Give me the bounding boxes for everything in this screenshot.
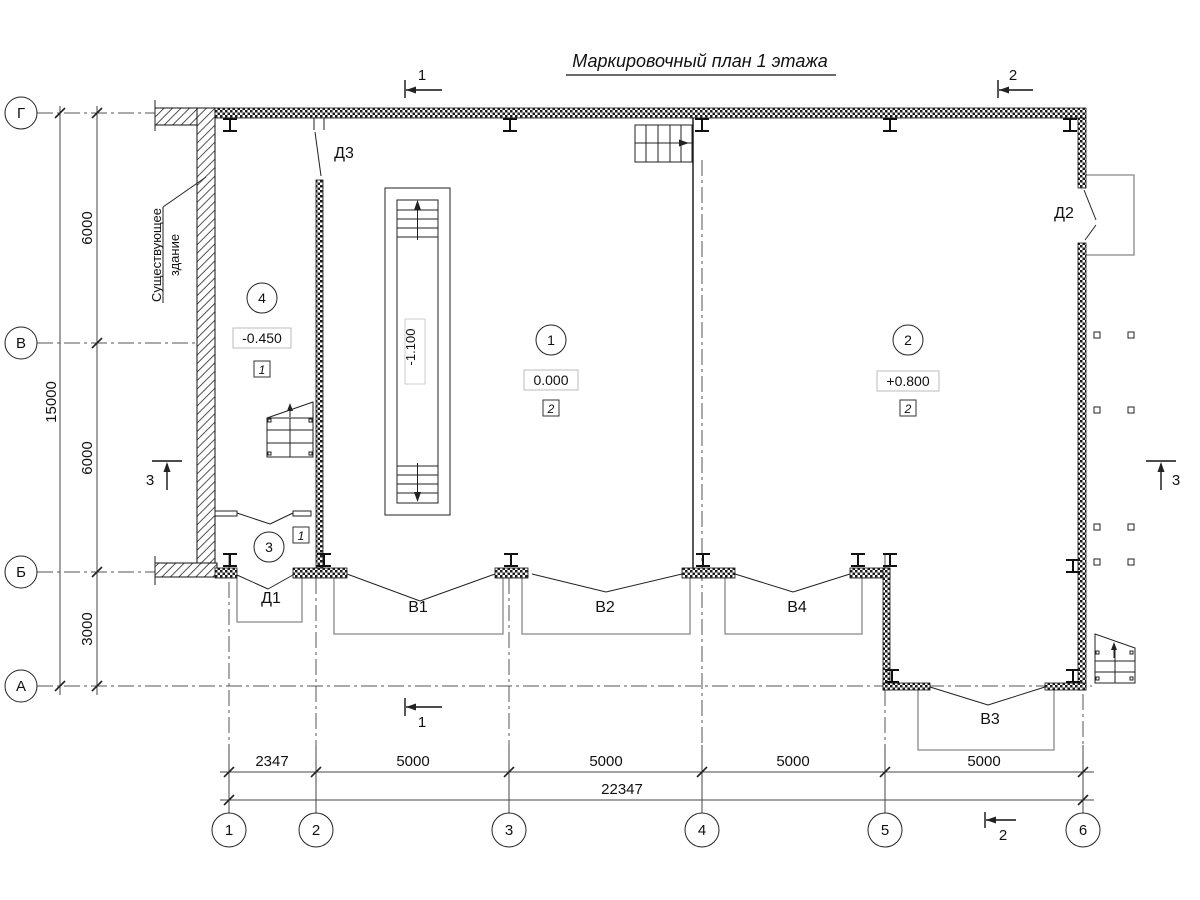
bottom-dimensions: 2347 5000 5000 5000 5000 22347 bbox=[220, 745, 1094, 813]
left-dimensions: 6000 6000 3000 15000 bbox=[43, 106, 102, 695]
southeast-stair bbox=[1095, 634, 1135, 683]
section-1-label: 1 bbox=[418, 714, 426, 731]
axis-col-5: 5 bbox=[881, 822, 889, 839]
room-2-mark: 2 +0.800 2 bbox=[877, 325, 939, 416]
section-mark-2-bottom: 2 bbox=[985, 812, 1016, 844]
dimension-ticks bbox=[55, 108, 102, 691]
top-stair bbox=[635, 125, 692, 162]
post-markers bbox=[1094, 332, 1134, 565]
dimension-ticks bbox=[224, 767, 1088, 805]
gate-swing-v4 bbox=[735, 574, 850, 592]
gate-swing-v2 bbox=[532, 574, 682, 592]
section-2-label: 2 bbox=[999, 827, 1007, 844]
label-d3: Д3 bbox=[334, 145, 354, 162]
room-2-number: 2 bbox=[904, 332, 912, 348]
room-1-mark: 1 0.000 2 bbox=[524, 325, 578, 416]
dim-6000-a: 6000 bbox=[79, 211, 96, 244]
dim-total-15000: 15000 bbox=[43, 381, 60, 423]
door-swing-d1 bbox=[237, 575, 293, 589]
existing-building-label-line2: здание bbox=[167, 234, 182, 276]
room-4-elevation: -0.450 bbox=[242, 330, 282, 346]
gate-swing-v1 bbox=[347, 574, 495, 601]
dim-2347: 2347 bbox=[255, 753, 288, 770]
label-v2: В2 bbox=[595, 599, 615, 616]
section-mark-1-bottom: 1 bbox=[405, 698, 442, 731]
room-3-finish: 1 bbox=[298, 529, 305, 543]
axis-row-b: Б bbox=[16, 564, 26, 581]
label-d2: Д2 bbox=[1054, 205, 1074, 222]
label-v4: В4 bbox=[787, 599, 807, 616]
room-1-number: 1 bbox=[547, 332, 555, 348]
door-swing-room3 bbox=[237, 513, 293, 524]
axis-col-1: 1 bbox=[225, 822, 233, 839]
axis-row-v: В bbox=[16, 335, 26, 352]
door-swings bbox=[237, 118, 1096, 705]
dim-5000-c: 5000 bbox=[776, 753, 809, 770]
dim-5000-a: 5000 bbox=[396, 753, 429, 770]
room-3-number: 3 bbox=[265, 539, 273, 555]
section-mark-3-left: 3 bbox=[146, 461, 182, 490]
dim-6000-b: 6000 bbox=[79, 441, 96, 474]
section-mark-3-right: 3 bbox=[1146, 461, 1180, 490]
room-4-number: 4 bbox=[258, 290, 266, 306]
exterior-walls bbox=[215, 108, 1086, 690]
axis-grid-lines bbox=[37, 113, 1092, 812]
section-mark-1-top: 1 bbox=[405, 67, 442, 98]
page-title: Маркировочный план 1 этажа bbox=[572, 51, 827, 71]
drawing-title-block: Маркировочный план 1 этажа bbox=[566, 51, 836, 75]
room-2-finish: 2 bbox=[904, 402, 912, 416]
room-2-elevation: +0.800 bbox=[886, 373, 929, 389]
section-3-label: 3 bbox=[146, 472, 154, 489]
section-1-label: 1 bbox=[418, 67, 426, 84]
room-4-mark: 4 -0.450 1 bbox=[233, 283, 291, 377]
room-1-elevation: 0.000 bbox=[533, 372, 568, 388]
label-v3: В3 bbox=[980, 711, 1000, 728]
room-3-mark: 3 1 bbox=[254, 527, 309, 562]
main-stair: -1.100 bbox=[385, 188, 450, 515]
section-3-label: 3 bbox=[1172, 472, 1180, 489]
room-1-finish: 2 bbox=[547, 402, 555, 416]
dim-total-22347: 22347 bbox=[601, 781, 643, 798]
axis-col-2: 2 bbox=[312, 822, 320, 839]
existing-building-label-line1: Существующее bbox=[149, 208, 164, 302]
gate-swing-v3 bbox=[930, 687, 1045, 705]
section-2-label: 2 bbox=[1009, 67, 1017, 84]
dim-5000-d: 5000 bbox=[967, 753, 1000, 770]
axis-col-6: 6 bbox=[1079, 822, 1087, 839]
drawing-page: 2347 5000 5000 5000 5000 22347 6000 6000… bbox=[0, 0, 1200, 900]
stair-elevation-label: -1.100 bbox=[403, 329, 418, 366]
room-4-finish: 1 bbox=[259, 363, 266, 377]
door-swing-d2 bbox=[1084, 190, 1096, 240]
opening-labels: Д1 В1 В2 В4 В3 Д2 Д3 bbox=[261, 145, 1074, 728]
porch-outlines bbox=[237, 175, 1134, 750]
axis-col-3: 3 bbox=[505, 822, 513, 839]
section-mark-2-top: 2 bbox=[998, 67, 1033, 98]
column-symbols bbox=[223, 119, 1080, 682]
floor-plan-drawing: 2347 5000 5000 5000 5000 22347 6000 6000… bbox=[0, 0, 1200, 900]
label-v1: В1 bbox=[408, 599, 428, 616]
axis-row-g: Г bbox=[17, 105, 25, 122]
dim-5000-b: 5000 bbox=[589, 753, 622, 770]
door-swing-d3 bbox=[314, 118, 324, 176]
dim-3000: 3000 bbox=[79, 612, 96, 645]
room4-stair bbox=[267, 402, 313, 457]
axis-col-4: 4 bbox=[698, 822, 706, 839]
label-d1: Д1 bbox=[261, 590, 281, 607]
axis-row-a: А bbox=[16, 678, 26, 695]
